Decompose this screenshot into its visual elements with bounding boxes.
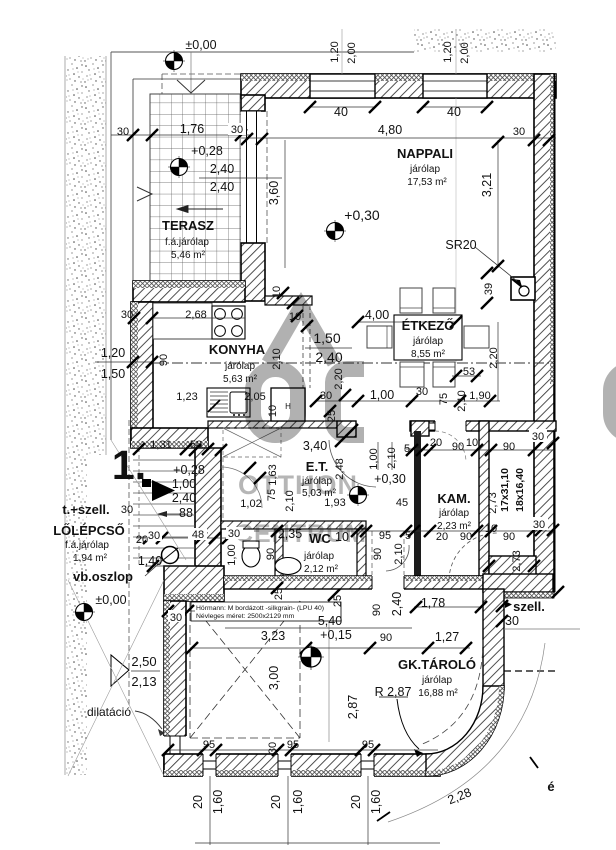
svg-text:+0,28: +0,28 [173,463,205,477]
svg-text:+0,15: +0,15 [320,628,352,642]
svg-text:30: 30 [533,519,545,531]
svg-text:2,10: 2,10 [456,390,468,411]
svg-text:88: 88 [179,506,193,520]
svg-text:3,21: 3,21 [480,173,494,197]
svg-text:2,35: 2,35 [278,527,302,541]
svg-text:NAPPALI: NAPPALI [397,146,453,161]
svg-text:R 2,87: R 2,87 [375,685,412,699]
svg-text:1,60: 1,60 [211,790,225,814]
svg-text:95: 95 [362,739,374,751]
svg-text:5: 5 [405,530,411,542]
svg-text:+0,28: +0,28 [191,144,223,158]
svg-text:1,50: 1,50 [313,330,340,346]
svg-text:30: 30 [117,126,129,138]
svg-text:95: 95 [379,530,391,542]
svg-text:90: 90 [371,604,383,616]
svg-text:10: 10 [271,286,283,298]
svg-text:30: 30 [121,309,133,321]
svg-text:2,00: 2,00 [459,42,471,63]
svg-text:2,40: 2,40 [315,349,342,365]
svg-text:2,73: 2,73 [511,550,523,571]
svg-text:90: 90 [503,531,515,543]
svg-text:4,80: 4,80 [378,123,402,137]
svg-text:30: 30 [170,612,182,624]
svg-text:járólap: járólap [224,361,255,372]
svg-text:járólap: járólap [438,508,469,519]
svg-text:2,20: 2,20 [333,368,345,389]
svg-text:1,63: 1,63 [267,464,279,485]
svg-text:2,13: 2,13 [131,674,156,689]
svg-text:10: 10 [335,530,349,544]
svg-text:vb.oszlop: vb.oszlop [73,569,133,584]
svg-text:KAM.: KAM. [437,491,470,506]
svg-text:2,10: 2,10 [284,490,296,511]
svg-text:53: 53 [463,366,475,378]
svg-text:1,76: 1,76 [180,122,204,136]
svg-text:10: 10 [485,523,497,535]
svg-text:3,60: 3,60 [267,181,281,205]
svg-text:30: 30 [228,528,240,540]
svg-text:95: 95 [287,739,299,751]
svg-text:WC: WC [309,531,331,546]
svg-text:KONYHA: KONYHA [209,342,266,357]
svg-text:2,40: 2,40 [210,162,234,176]
svg-text:30: 30 [513,126,525,138]
svg-text:40: 40 [447,105,461,119]
svg-text:1,00: 1,00 [172,477,196,491]
svg-text:30: 30 [267,742,279,754]
svg-text:20: 20 [430,437,442,449]
svg-text:1,78: 1,78 [421,596,445,610]
svg-text:1,20: 1,20 [442,41,454,62]
svg-text:2,68: 2,68 [185,309,206,321]
svg-text:é: é [547,779,554,794]
svg-text:17x31,10: 17x31,10 [499,468,511,512]
svg-text:90: 90 [460,531,472,543]
svg-text:1,60: 1,60 [291,790,305,814]
svg-text:4,00: 4,00 [365,308,389,322]
svg-text:18x16,40: 18x16,40 [514,468,526,512]
svg-text:2,40: 2,40 [210,180,234,194]
svg-text:17,53 m²: 17,53 m² [407,177,447,188]
svg-text:2,40: 2,40 [172,491,196,505]
svg-text:2,48: 2,48 [334,458,346,479]
svg-text:GK.TÁROLÓ: GK.TÁROLÓ [398,657,476,672]
svg-text:1,02: 1,02 [240,498,261,510]
svg-text:2,12 m²: 2,12 m² [304,564,339,575]
svg-text:30: 30 [121,504,133,516]
svg-text:8,55 m²: 8,55 m² [411,349,446,360]
svg-text:2,00: 2,00 [346,42,358,63]
svg-text:5: 5 [404,443,410,455]
svg-text:2,10: 2,10 [271,348,283,369]
svg-text:45: 45 [396,497,408,509]
svg-text:3,40: 3,40 [303,439,327,453]
svg-text:25: 25 [326,410,338,422]
svg-text:1.: 1. [112,442,146,488]
svg-text:90: 90 [158,354,170,366]
svg-text:90: 90 [265,548,277,560]
svg-text:10: 10 [466,437,478,449]
svg-text:30: 30 [416,386,428,398]
svg-text:Hörmann: M bordázott -silkgrai: Hörmann: M bordázott -silkgrain- (LPU 40… [196,605,324,612]
svg-text:1,20: 1,20 [329,41,341,62]
svg-text:1,00: 1,00 [226,544,238,565]
svg-text:30: 30 [505,614,519,628]
svg-text:1,20: 1,20 [101,346,125,360]
svg-text:48: 48 [192,529,204,541]
svg-text:20: 20 [269,795,283,809]
svg-text:2,50: 2,50 [131,654,156,669]
svg-text:39: 39 [483,283,495,295]
svg-text:2,73: 2,73 [487,492,499,513]
svg-text:1,60: 1,60 [369,790,383,814]
svg-text:TERASZ: TERASZ [162,218,214,233]
svg-text:16,88 m²: 16,88 m² [418,688,458,699]
svg-text:járólap: járólap [409,164,440,175]
svg-text:±0,00: ±0,00 [95,593,126,607]
svg-text:1,31: 1,31 [150,439,171,451]
svg-text:30: 30 [231,124,243,136]
svg-text:25: 25 [332,595,344,607]
svg-text:1,93: 1,93 [324,497,345,509]
svg-text:50: 50 [190,439,202,451]
svg-text:f.á.járólap: f.á.járólap [65,540,109,551]
svg-text:1,27: 1,27 [435,630,459,644]
svg-text:90: 90 [372,548,384,560]
svg-text:5,63 m²: 5,63 m² [223,374,258,385]
svg-text:1,94 m²: 1,94 m² [73,553,108,564]
svg-text:járólap: járólap [421,675,452,686]
svg-text:20: 20 [136,534,148,546]
svg-text:20: 20 [436,531,448,543]
svg-text:járólap: járólap [303,551,334,562]
svg-text:10: 10 [289,311,301,323]
svg-text:ÉTKEZŐ: ÉTKEZŐ [402,318,455,333]
svg-text:1,40: 1,40 [138,554,162,568]
svg-text:SR20: SR20 [445,238,476,252]
svg-text:+0,30: +0,30 [344,207,380,223]
svg-text:30: 30 [532,431,544,443]
svg-text:2,40: 2,40 [390,592,404,616]
svg-text:5,40: 5,40 [318,614,342,628]
svg-text:járólap: járólap [301,476,332,487]
svg-text:75: 75 [266,489,278,501]
svg-text:30: 30 [320,390,332,402]
svg-text:95: 95 [203,739,215,751]
svg-text:E.T.: E.T. [306,459,328,474]
svg-text:2,10: 2,10 [393,543,405,564]
svg-text:f.á.járólap: f.á.járólap [165,237,209,248]
svg-text:90: 90 [503,441,515,453]
svg-text:1,23: 1,23 [176,391,197,403]
svg-text:1,90: 1,90 [469,390,490,402]
svg-text:járólap: járólap [412,336,443,347]
svg-text:20: 20 [349,795,363,809]
svg-text:szell.: szell. [513,599,545,614]
svg-text:+0,30: +0,30 [374,472,406,486]
svg-text:40: 40 [334,105,348,119]
svg-text:10: 10 [267,405,279,417]
svg-text:25: 25 [273,588,285,600]
svg-text:3,00: 3,00 [267,666,281,690]
svg-text:90: 90 [380,632,392,644]
svg-text:LŐLÉPCSŐ: LŐLÉPCSŐ [53,523,125,538]
svg-text:2,10: 2,10 [386,447,398,468]
svg-text:20: 20 [191,795,205,809]
svg-text:75: 75 [438,393,450,405]
svg-text:2,20: 2,20 [488,347,500,368]
svg-text:3,23: 3,23 [261,629,285,643]
svg-text:30: 30 [148,530,160,542]
svg-text:1,00: 1,00 [368,448,380,469]
svg-text:2,87: 2,87 [346,695,360,719]
svg-text:1,50: 1,50 [101,367,125,381]
svg-text:±0,00: ±0,00 [185,38,216,52]
svg-text:1,00: 1,00 [370,388,394,402]
svg-text:2,05: 2,05 [244,391,265,403]
svg-text:90: 90 [452,441,464,453]
svg-text:H: H [285,402,291,411]
svg-text:Névleges méret: 2500x2129 mm: Névleges méret: 2500x2129 mm [196,613,295,620]
svg-text:dilatáció: dilatáció [87,705,131,719]
svg-text:5,46 m²: 5,46 m² [171,250,206,261]
svg-text:t.+szell.: t.+szell. [62,502,109,517]
